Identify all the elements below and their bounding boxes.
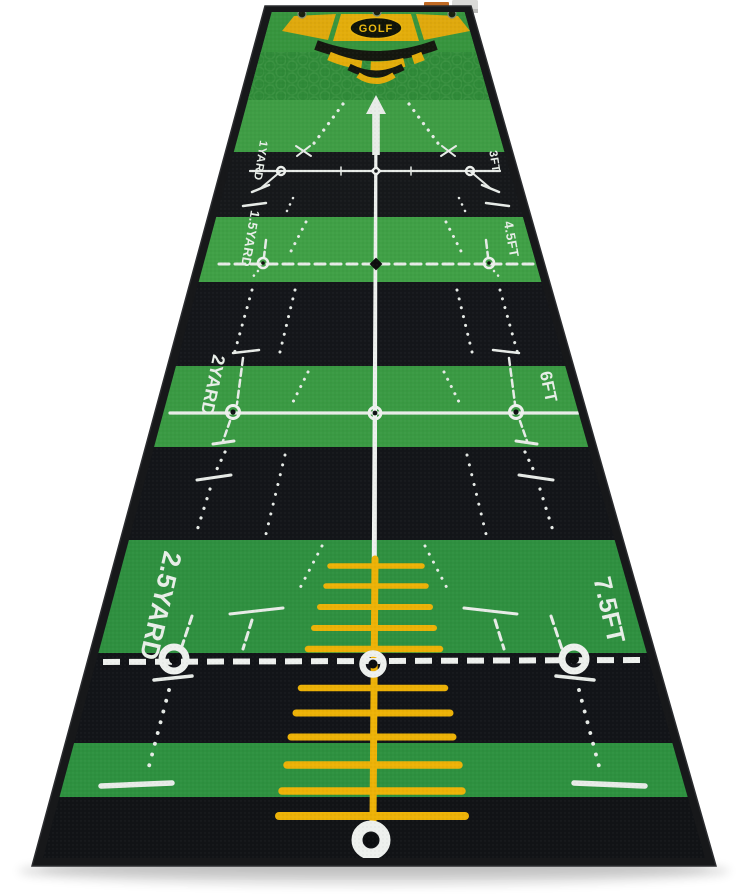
mat-surface: GOLF: [43, 8, 705, 858]
product-image: GOLF: [0, 0, 749, 895]
putting-mat-illustration: GOLF: [0, 0, 749, 895]
carpet-texture: [43, 12, 705, 858]
